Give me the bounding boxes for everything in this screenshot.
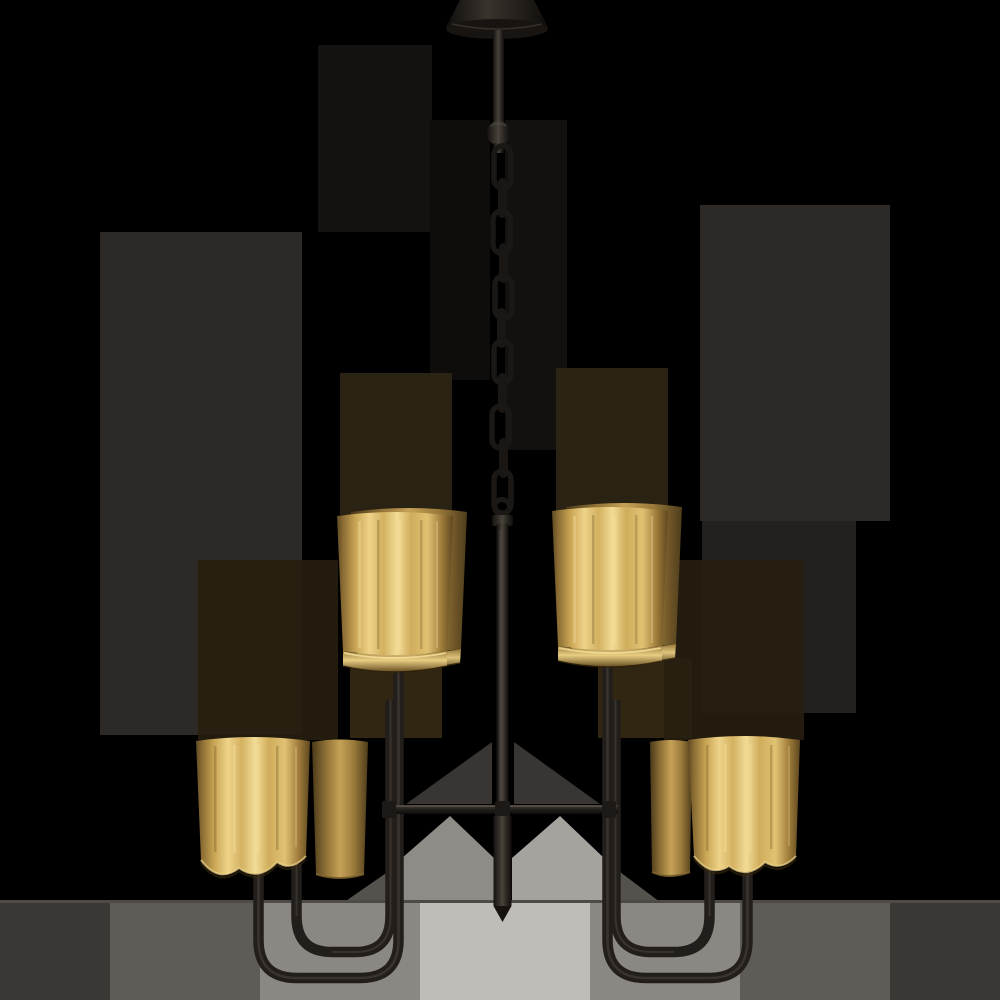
- artifact-patch: [664, 560, 804, 740]
- artifact-patch: [700, 205, 890, 521]
- shade-back: [312, 740, 368, 878]
- shade-front: [688, 736, 800, 872]
- crossbar-joint: [382, 801, 396, 818]
- artifact-patch: [198, 560, 338, 740]
- chandelier-illustration: [0, 0, 1000, 1000]
- upper-left-shades: [337, 508, 467, 672]
- lower-right-shades: [650, 736, 800, 876]
- shade-back: [650, 740, 692, 876]
- crossbar-joint: [495, 801, 510, 818]
- product-photo: [0, 0, 1000, 1000]
- lower-left-shades: [196, 737, 368, 878]
- artifact-patch: [430, 120, 490, 380]
- crossbar-joint: [602, 801, 616, 818]
- artifact-patch: [318, 45, 432, 232]
- column-finial: [494, 816, 512, 922]
- hanging-rod: [493, 30, 504, 130]
- upper-right-shades: [552, 503, 682, 667]
- artifact-patch: [340, 373, 452, 515]
- artifact-patch: [556, 368, 668, 515]
- shade-front: [196, 737, 310, 874]
